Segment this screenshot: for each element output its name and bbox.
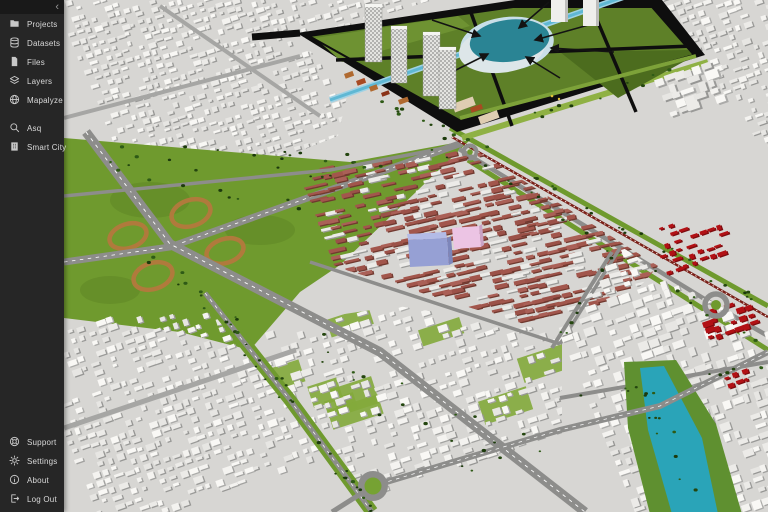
sidebar-item-projects[interactable]: Projects [0,15,64,34]
sidebar-item-label: Layers [27,77,52,86]
search-icon [9,120,20,138]
sidebar: ‹ Projects Datasets Files Layers Mapalyz… [0,0,64,512]
city-3d-scene [64,0,768,512]
sidebar-item-label: Settings [27,457,58,466]
sidebar-footer-nav: Support Settings About Log Out [0,433,64,509]
sidebar-header: ‹ [0,0,64,14]
sidebar-item-datasets[interactable]: Datasets [0,34,64,53]
sidebar-item-label: Mapalyze [27,96,63,105]
sidebar-item-smart-city[interactable]: Smart City [0,138,64,157]
sidebar-item-settings[interactable]: Settings [0,452,64,471]
sidebar-main-nav: Projects Datasets Files Layers Mapalyze [0,15,64,110]
file-icon [9,54,20,72]
sidebar-item-support[interactable]: Support [0,433,64,452]
sidebar-item-layers[interactable]: Layers [0,72,64,91]
sidebar-collapse-button[interactable]: ‹ [52,2,62,12]
sidebar-item-label: Projects [27,20,58,29]
database-icon [9,35,20,53]
roundabout-south [358,471,388,501]
sidebar-item-label: Asq [27,124,41,133]
folder-icon [9,16,20,34]
sidebar-item-about[interactable]: About [0,471,64,490]
sidebar-item-asq[interactable]: Asq [0,119,64,138]
gear-icon [9,453,20,471]
sidebar-tools-nav: Asq Smart City [0,119,64,157]
globe-icon [9,92,20,110]
sidebar-item-logout[interactable]: Log Out [0,490,64,509]
lifebuoy-icon [9,434,20,452]
info-icon [9,472,20,490]
sidebar-item-label: About [27,476,49,485]
logout-icon [9,491,20,509]
building-icon [9,139,20,157]
sidebar-item-label: Support [27,438,56,447]
selected-building-pink[interactable] [452,224,484,249]
sidebar-item-mapalyze[interactable]: Mapalyze [0,91,64,110]
sidebar-item-label: Datasets [27,39,60,48]
layers-icon [9,73,20,91]
map-viewport[interactable] [64,0,768,512]
sidebar-item-label: Log Out [27,495,57,504]
selected-building-blue[interactable] [407,232,453,267]
sidebar-item-label: Files [27,58,45,67]
sidebar-item-label: Smart City [27,143,66,152]
sidebar-item-files[interactable]: Files [0,53,64,72]
